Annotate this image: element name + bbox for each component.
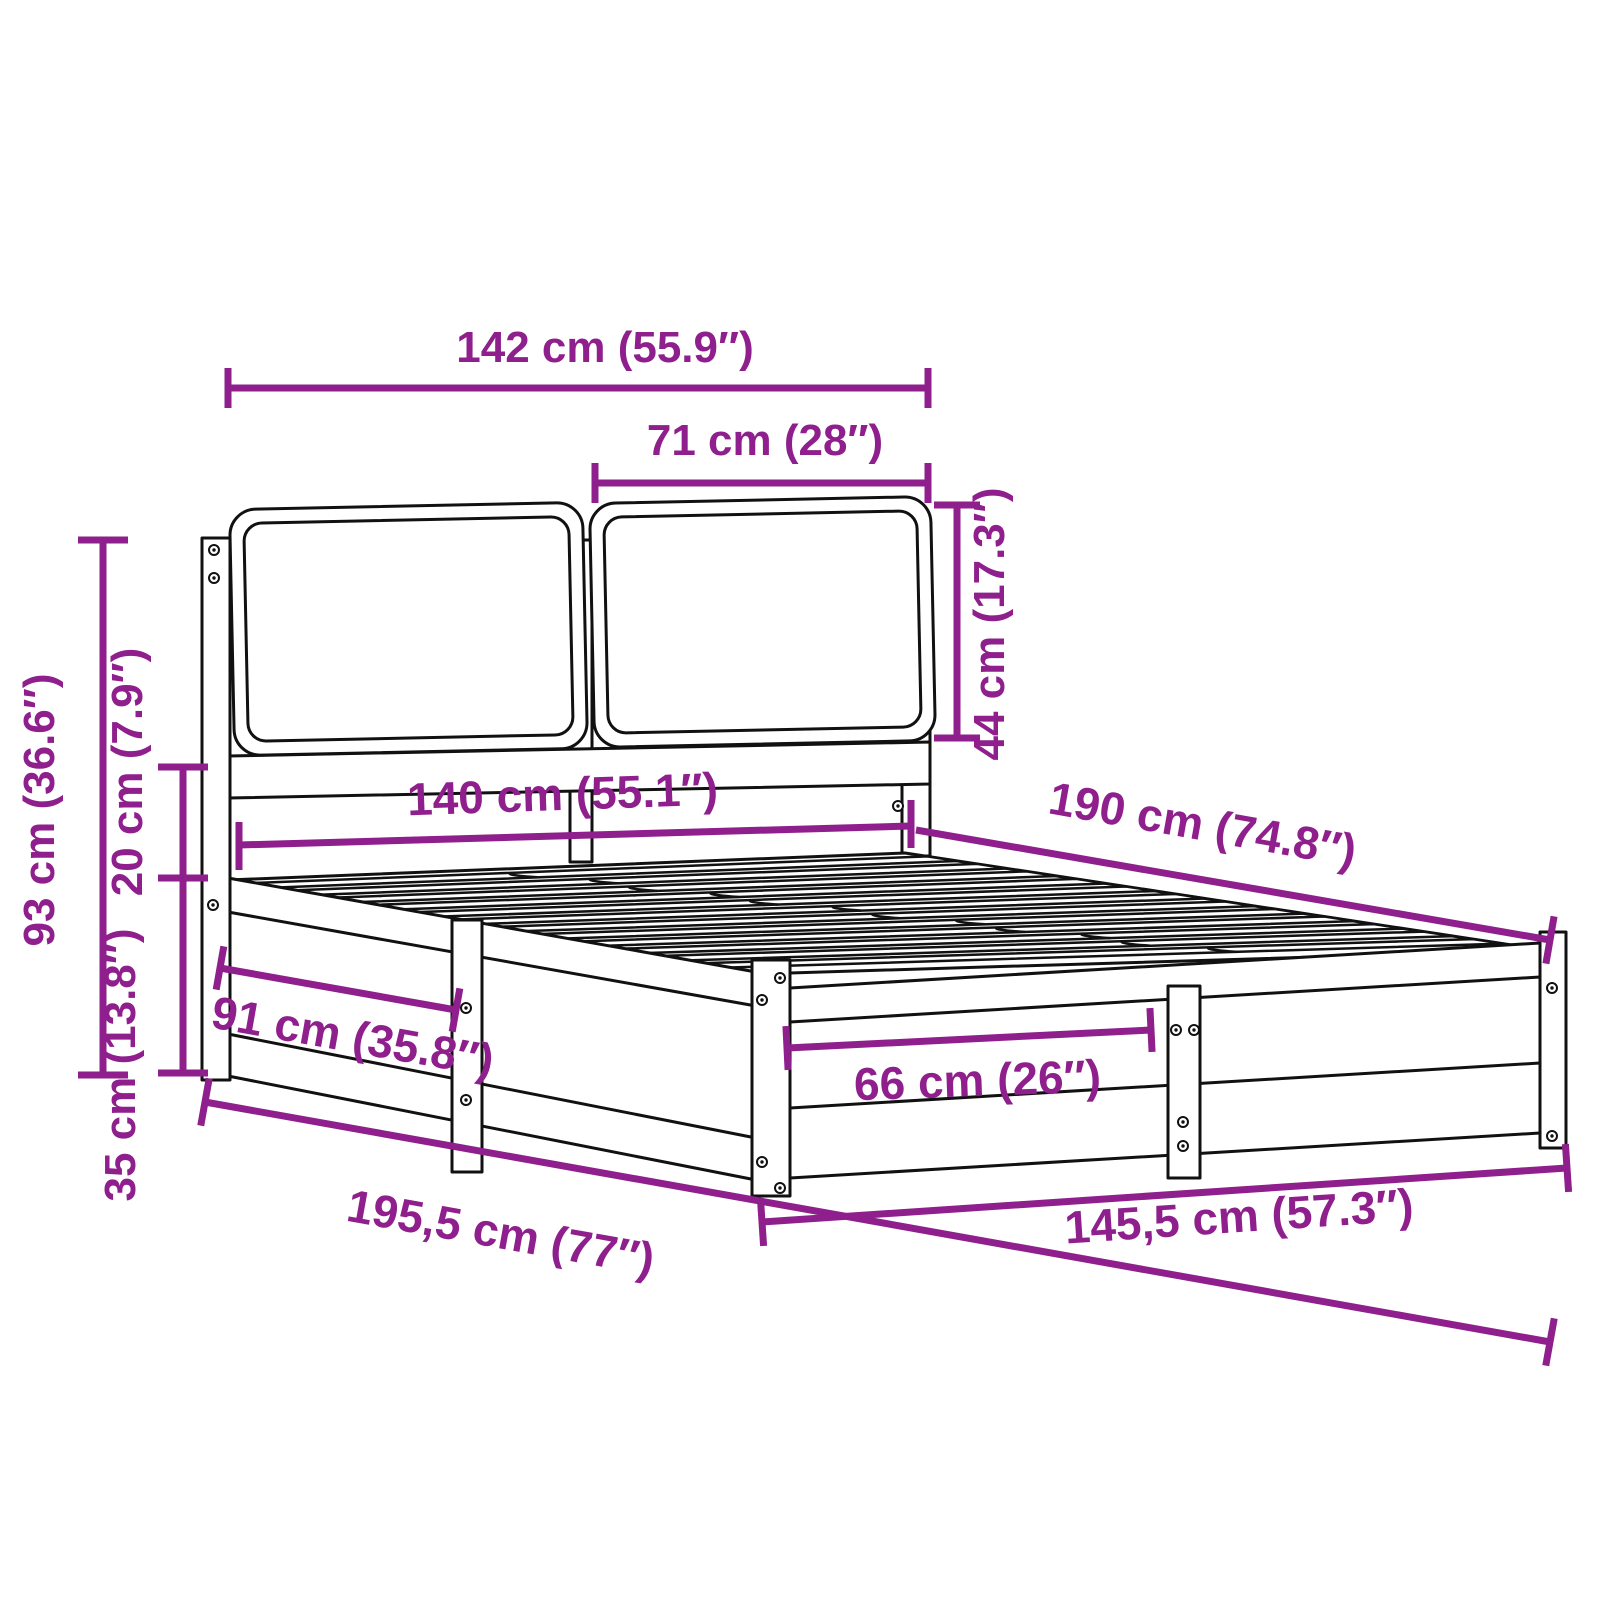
dim-label-headboard-height: 93 cm (36.6″) [15, 673, 64, 946]
screw-dot [778, 976, 781, 979]
dim-label-cushion-height: 44 cm (17.3″) [965, 487, 1014, 760]
dimension-diagram: 142 cm (55.9″) 71 cm (28″) 44 cm (17.3″)… [0, 0, 1600, 1600]
dim-label-frame-height: 35 cm (13.8″) [96, 928, 145, 1201]
screw-dot [1181, 1144, 1184, 1147]
screw-dot [1550, 986, 1553, 989]
screw-dot [760, 998, 763, 1001]
headboard-cushion-left-inner-seam [244, 517, 573, 742]
dim-label-total-width: 145,5 cm (57.3″) [1063, 1179, 1415, 1254]
screw-dot [464, 1098, 467, 1101]
screw-dot [212, 548, 215, 551]
screw-dot [464, 1006, 467, 1009]
dim-label-cushion-width: 71 cm (28″) [647, 416, 883, 465]
screw-dot [211, 903, 214, 906]
dim-label-inner-width: 140 cm (55.1″) [406, 763, 719, 826]
dimension-line-headboard-total-width [228, 368, 928, 408]
dim-label-rail-gap-height: 20 cm (7.9″) [103, 648, 152, 897]
foot-right-post [1540, 932, 1566, 1148]
dim-label-headboard-total-width: 142 cm (55.9″) [456, 323, 753, 372]
headboard-cushion-right-inner-seam [604, 511, 921, 734]
dim-label-foot-panel-section: 66 cm (26″) [853, 1050, 1102, 1111]
screw-dot [1174, 1028, 1177, 1031]
dim-label-total-length: 195,5 cm (77″) [343, 1179, 658, 1285]
screw-dot [1192, 1028, 1195, 1031]
screw-dot [896, 804, 899, 807]
screw-dot [212, 576, 215, 579]
screw-dot [1181, 1120, 1184, 1123]
screw-dot [778, 1186, 781, 1189]
screw-dot [1550, 1134, 1553, 1137]
screw-dot [760, 1160, 763, 1163]
